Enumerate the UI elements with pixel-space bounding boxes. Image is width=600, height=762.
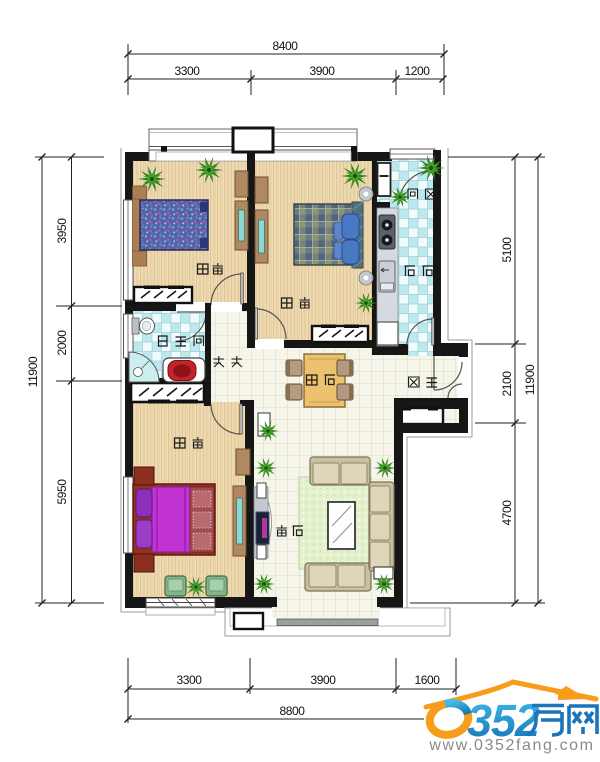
svg-text:8800: 8800 xyxy=(279,704,305,718)
svg-text:1600: 1600 xyxy=(414,673,440,687)
svg-text:5100: 5100 xyxy=(500,237,514,263)
svg-text:4700: 4700 xyxy=(500,500,514,526)
svg-text:www.0352fang.com: www.0352fang.com xyxy=(428,737,594,754)
svg-text:1200: 1200 xyxy=(404,64,430,78)
svg-text:2100: 2100 xyxy=(500,371,514,397)
svg-text:5950: 5950 xyxy=(55,479,69,505)
svg-text:3300: 3300 xyxy=(174,64,200,78)
svg-text:3900: 3900 xyxy=(310,673,336,687)
svg-text:3950: 3950 xyxy=(55,218,69,244)
svg-text:11900: 11900 xyxy=(523,364,537,395)
svg-text:3300: 3300 xyxy=(176,673,202,687)
svg-text:2000: 2000 xyxy=(55,330,69,356)
svg-text:8400: 8400 xyxy=(272,39,298,53)
svg-text:11900: 11900 xyxy=(26,356,40,387)
svg-text:3900: 3900 xyxy=(309,64,335,78)
